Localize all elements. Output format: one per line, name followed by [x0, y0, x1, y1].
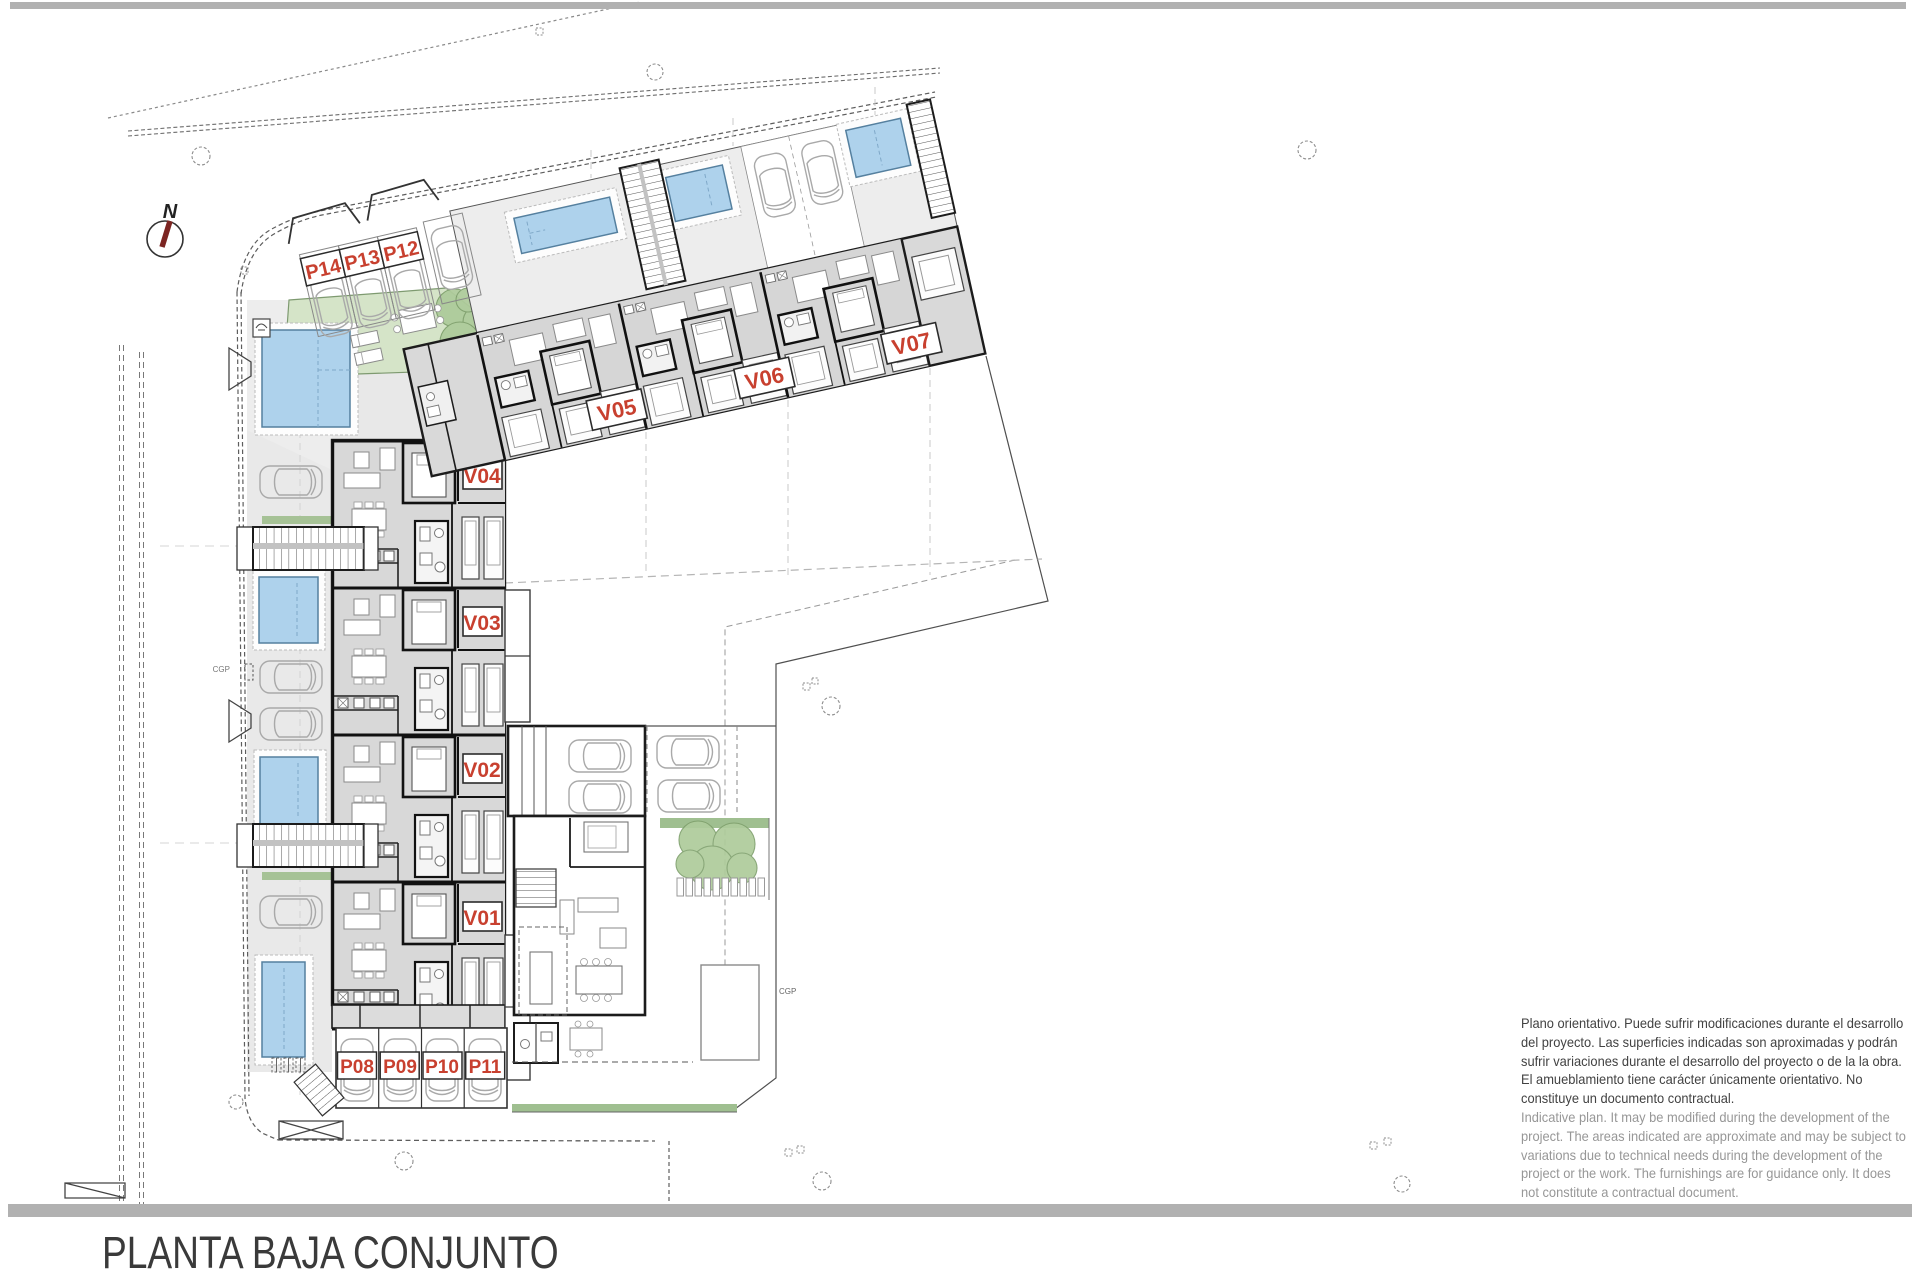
- svg-text:P08: P08: [340, 1057, 374, 1078]
- svg-text:V02: V02: [463, 759, 500, 782]
- svg-text:P11: P11: [469, 1057, 502, 1078]
- svg-text:P09: P09: [383, 1057, 417, 1078]
- svg-text:CGP: CGP: [213, 665, 230, 674]
- svg-text:V03: V03: [463, 612, 500, 635]
- svg-text:P10: P10: [425, 1057, 459, 1078]
- svg-text:CGP: CGP: [779, 987, 796, 996]
- svg-text:N: N: [163, 201, 178, 223]
- svg-text:V01: V01: [463, 907, 501, 930]
